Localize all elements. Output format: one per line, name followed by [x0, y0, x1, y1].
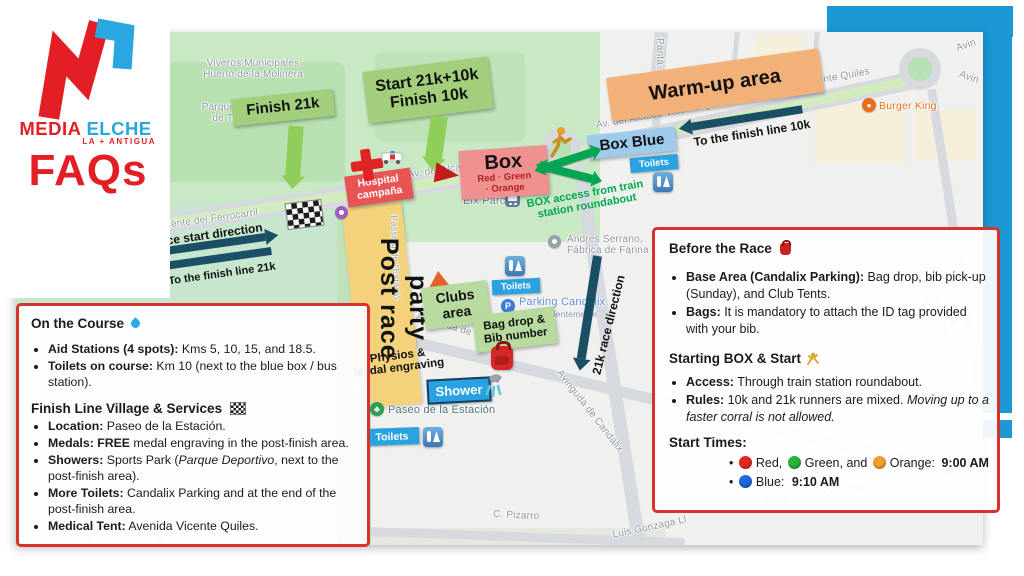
- green-dot-icon: [788, 456, 801, 469]
- on-the-course-title: On the Course: [31, 315, 363, 333]
- starting-box-list: Access: Through train station roundabout…: [669, 374, 991, 426]
- race-flag-icon: [434, 162, 461, 185]
- toilets-icon-boxblue: [653, 172, 673, 192]
- blue-dot-icon: [739, 475, 752, 488]
- list-item: Rules: 10k and 21k runners are mixed. Mo…: [686, 392, 991, 426]
- list-item: Bags: It is mandatory to attach the ID t…: [686, 304, 991, 338]
- street-label-avin-2: Avin: [958, 69, 981, 86]
- before-the-race-list: Base Area (Candalix Parking): Bag drop, …: [669, 269, 991, 338]
- red-cross-icon: [349, 147, 385, 183]
- list-item: Access: Through train station roundabout…: [686, 374, 991, 391]
- toilets-icon-bottom: [423, 427, 443, 447]
- checkered-flag-icon: [284, 199, 324, 230]
- list-item: Location: Paseo de la Estación.: [48, 419, 363, 435]
- on-the-course-list: Aid Stations (4 spots): Kms 5, 10, 15, a…: [31, 342, 363, 391]
- poi-paseo-label: Paseo de la Estación: [388, 404, 495, 416]
- finish-line-village-list: Location: Paseo de la Estación. Medals: …: [31, 419, 363, 535]
- box-rgo-sub: Red · Green · Orange: [477, 171, 532, 196]
- station-icon: [335, 206, 348, 219]
- toilets-label-boxblue: Toilets: [629, 154, 678, 173]
- street-label-avin-1: Avin: [955, 37, 977, 54]
- list-item: More Toilets: Candalix Parking and at th…: [48, 486, 363, 518]
- poi-burger-king-label: Burger King: [879, 100, 937, 112]
- runner-icon: [546, 125, 572, 159]
- red-dot-icon: [739, 456, 752, 469]
- tree-icon: ♣: [370, 402, 384, 416]
- faqs-title: FAQs: [18, 146, 158, 196]
- backpack-mini-icon: [780, 243, 791, 255]
- checkered-flag-mini-icon: [230, 402, 246, 415]
- building-block: [815, 104, 905, 164]
- finish-line-village-title: Finish Line Village & Services: [31, 400, 363, 418]
- before-the-race-title: Before the Race: [669, 240, 991, 258]
- street-label-panta: Pantà: [654, 38, 665, 65]
- cartwheel-icon: [806, 352, 820, 365]
- list-item: Aid Stations (4 spots): Kms 5, 10, 15, a…: [48, 342, 363, 358]
- street-label-viveros: Viveros Municipales Huerto de la Moliner…: [203, 58, 303, 80]
- list-item: Showers: Sports Park (Parque Deportivo, …: [48, 453, 363, 485]
- ambulance-icon: [381, 150, 403, 165]
- logo-panel: MEDIA ELCHE LA + ANTIGUA FAQs: [0, 0, 170, 298]
- shower-head-icon: [481, 370, 509, 402]
- poi-andres-serrano-label: Andres Serrano, Fábrica de Farina: [567, 234, 649, 256]
- brand-elche: ELCHE: [86, 118, 151, 139]
- brand-subtitle: LA + ANTIGUA: [8, 137, 156, 146]
- toilets-label-center: Toilets: [492, 278, 541, 295]
- list-item: Toilets on course: Km 10 (next to the bl…: [48, 359, 363, 391]
- droplet-icon: [129, 317, 142, 330]
- bullet: •: [729, 456, 733, 470]
- list-item: Base Area (Candalix Parking): Bag drop, …: [686, 269, 991, 303]
- street-label-pizarro: C. Pizarro: [493, 509, 540, 522]
- backpack-icon: [491, 346, 513, 370]
- brand-media: MEDIA: [19, 118, 80, 139]
- starting-box-title: Starting BOX & Start: [669, 350, 991, 368]
- on-the-course-box: On the Course Aid Stations (4 spots): Km…: [16, 303, 370, 547]
- media-elche-logo-mark: [22, 14, 162, 122]
- start-times-line-2: • Blue: 9:10 AM: [729, 474, 991, 491]
- faq-slide: Viveros Municipales Huerto de la Moliner…: [0, 0, 1024, 576]
- start-times-line-1: • Red, Green, and Orange: 9:00 AM: [729, 455, 991, 472]
- pin-icon: [548, 235, 561, 248]
- roundabout-east-green: [908, 57, 932, 81]
- list-item: Medals: FREE medal engraving in the post…: [48, 436, 363, 452]
- before-the-race-box: Before the Race Base Area (Candalix Park…: [652, 227, 1000, 513]
- post-race-party-label-1: Post race: [374, 238, 403, 360]
- bullet: •: [729, 475, 733, 489]
- toilets-icon-center: [505, 256, 525, 276]
- burger-king-icon: ●: [862, 98, 876, 112]
- start-times-title: Start Times:: [669, 434, 991, 452]
- orange-dot-icon: [873, 456, 886, 469]
- list-item: Medical Tent: Avenida Vicente Quiles.: [48, 519, 363, 535]
- toilets-label-bottom: Toilets: [365, 427, 420, 446]
